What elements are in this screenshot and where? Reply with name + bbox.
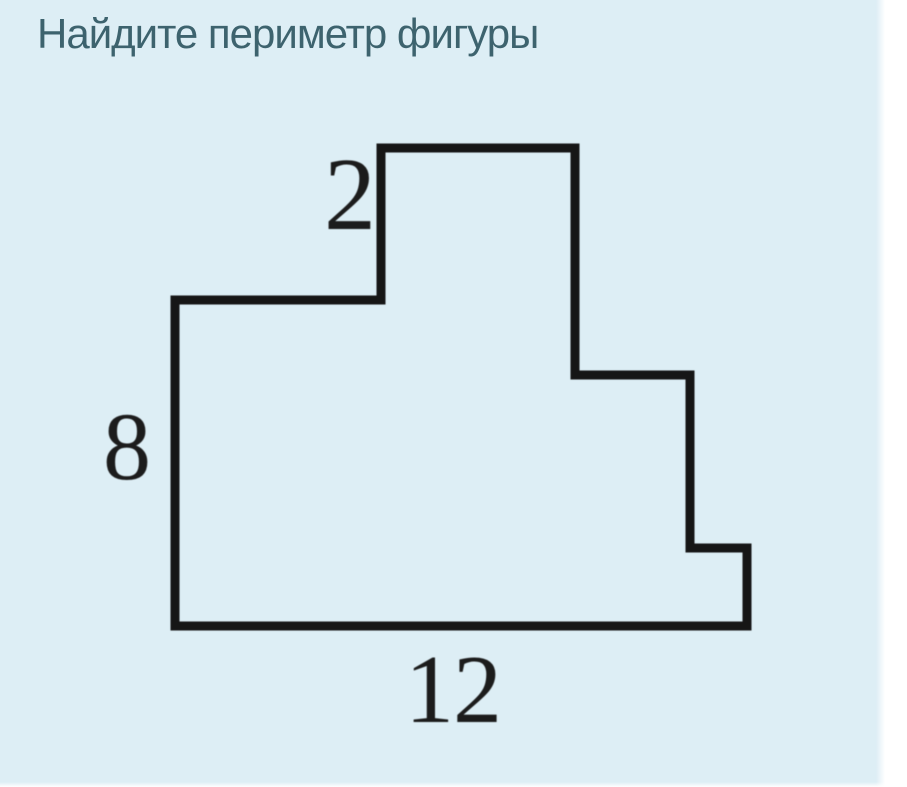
svg-text:12: 12 bbox=[405, 636, 501, 744]
svg-text:8: 8 bbox=[103, 393, 151, 500]
svg-text:2: 2 bbox=[324, 137, 376, 252]
